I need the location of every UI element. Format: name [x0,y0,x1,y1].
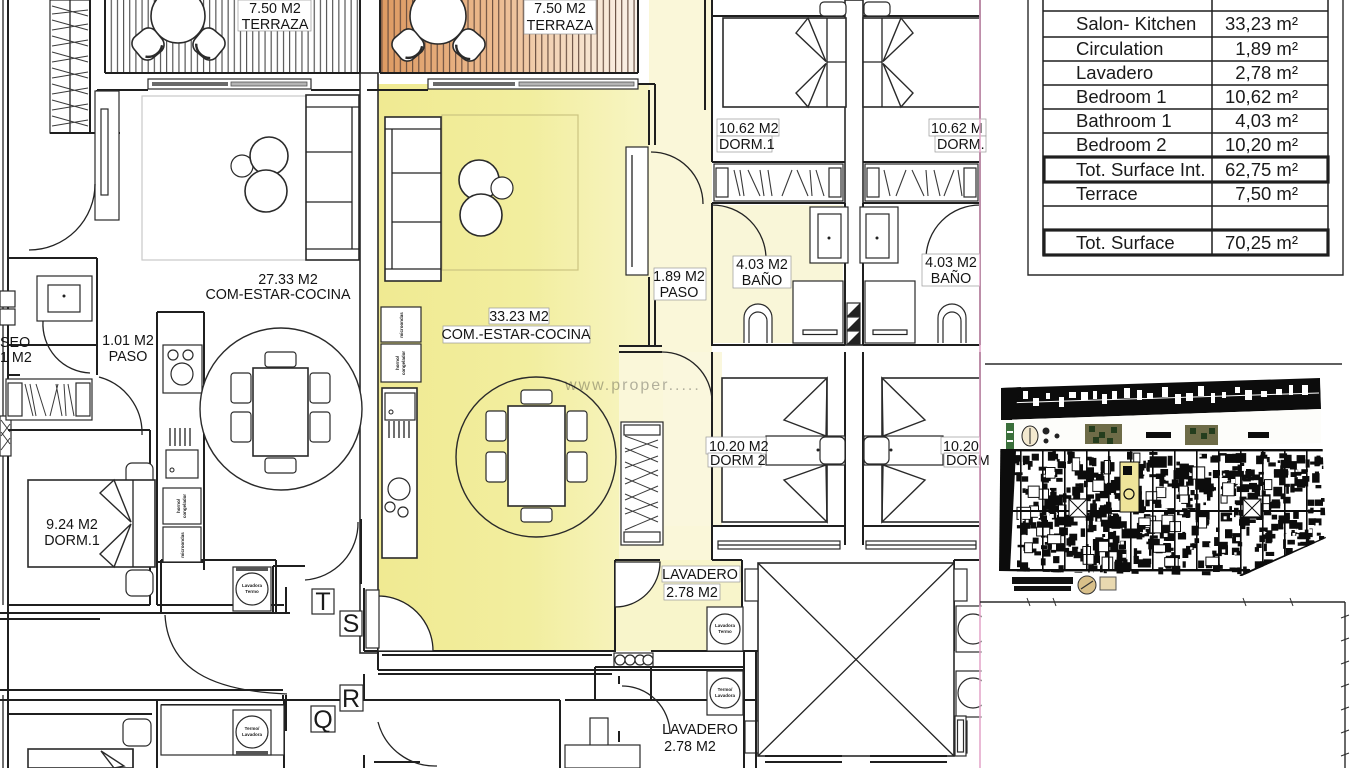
svg-text:Circulation: Circulation [1076,38,1163,59]
svg-text:horno/: horno/ [395,355,400,370]
svg-text:COM.-ESTAR-COCINA: COM.-ESTAR-COCINA [441,327,591,343]
svg-text:1,89 m²: 1,89 m² [1235,38,1298,59]
svg-text:microondas: microondas [180,532,185,558]
svg-text:1 M2: 1 M2 [0,350,32,366]
svg-text:2.78 M2: 2.78 M2 [666,585,718,601]
svg-text:DORM: DORM [946,453,990,469]
svg-text:DORM.1: DORM.1 [719,137,775,153]
svg-text:Termo/: Termo/ [718,687,733,692]
svg-text:PASO: PASO [109,349,148,365]
svg-text:Termo: Termo [718,629,732,634]
svg-text:SEO: SEO [0,335,30,351]
svg-text:PASO: PASO [660,285,699,301]
svg-text:Bathroom 1: Bathroom 1 [1076,110,1172,131]
svg-text:COM-ESTAR-COCINA: COM-ESTAR-COCINA [205,287,351,303]
svg-text:LAVADERO: LAVADERO [662,722,738,738]
svg-text:9.24 M2: 9.24 M2 [46,517,98,533]
svg-text:Q: Q [313,706,332,734]
svg-text:S: S [343,610,360,638]
svg-text:Tot. Surface: Tot. Surface [1076,232,1175,253]
svg-text:Termo/: Termo/ [245,726,260,731]
svg-text:DORM 2: DORM 2 [710,453,766,469]
svg-text:BAÑO: BAÑO [742,272,783,289]
svg-text:4.03 M2: 4.03 M2 [925,255,977,271]
svg-text:62,75 m²: 62,75 m² [1225,159,1298,180]
svg-text:Bedroom 1: Bedroom 1 [1076,86,1167,107]
svg-text:congelador: congelador [401,351,406,376]
svg-text:Bedroom 2: Bedroom 2 [1076,134,1167,155]
svg-text:congelador: congelador [182,494,187,519]
svg-text:DORM.: DORM. [937,137,985,153]
svg-text:1.89 M2: 1.89 M2 [653,269,705,285]
svg-text:10.62 M2: 10.62 M2 [719,121,779,137]
svg-text:Termo: Termo [245,589,259,594]
svg-text:10.62 M: 10.62 M [931,121,983,137]
svg-text:TERRAZA: TERRAZA [242,17,309,33]
svg-text:1.01 M2: 1.01 M2 [102,333,154,349]
svg-text:Lavadora: Lavadora [715,693,736,698]
svg-text:4.03 M2: 4.03 M2 [736,257,788,273]
svg-text:Terrace: Terrace [1076,183,1138,204]
svg-text:10,62 m²: 10,62 m² [1225,86,1298,107]
svg-text:7.50 M2: 7.50 M2 [249,1,301,17]
svg-text:microondas: microondas [399,312,404,338]
svg-text:33.23 M2: 33.23 M2 [489,309,549,325]
svg-text:Lavadora: Lavadora [242,732,263,737]
svg-text:Lavadora: Lavadora [715,623,736,628]
svg-text:Lavadora: Lavadora [242,583,263,588]
svg-text:33,23 m²: 33,23 m² [1225,13,1298,34]
svg-text:BAÑO: BAÑO [931,270,972,287]
svg-text:TERRAZA: TERRAZA [527,18,594,34]
svg-text:27.33 M2: 27.33 M2 [258,272,318,288]
svg-text:Tot. Surface Int.: Tot. Surface Int. [1076,159,1206,180]
svg-text:horno/: horno/ [176,498,181,513]
svg-text:T: T [315,588,330,616]
svg-text:4,03 m²: 4,03 m² [1235,110,1298,131]
svg-text:2,78 m²: 2,78 m² [1235,62,1298,83]
svg-text:10,20 m²: 10,20 m² [1225,134,1298,155]
svg-text:70,25 m²: 70,25 m² [1225,232,1298,253]
svg-text:www.proper.....: www.proper..... [564,377,701,394]
svg-text:LAVADERO: LAVADERO [662,567,738,583]
svg-text:2.78 M2: 2.78 M2 [664,739,716,755]
svg-text:7.50 M2: 7.50 M2 [534,1,586,17]
svg-text:Salon- Kitchen: Salon- Kitchen [1076,13,1196,34]
svg-text:7,50 m²: 7,50 m² [1235,183,1298,204]
svg-text:DORM.1: DORM.1 [44,533,100,549]
svg-text:Lavadero: Lavadero [1076,62,1153,83]
svg-text:R: R [342,685,360,713]
